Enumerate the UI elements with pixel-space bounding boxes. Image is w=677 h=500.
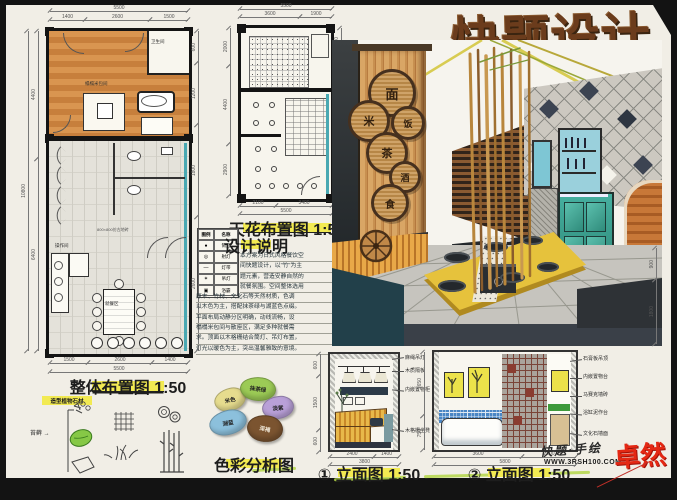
perspective-rendering: 面 米 饭 茶 酒 食 bbox=[332, 40, 662, 346]
dim-value: 1900 bbox=[310, 12, 321, 18]
elevation-annotation: 浴缸泥作台 bbox=[583, 409, 608, 416]
dim-value: 5500 bbox=[113, 6, 124, 12]
downlight-icon bbox=[283, 183, 289, 189]
chair-icon bbox=[92, 293, 102, 303]
swatch-label: 抹茶绿 bbox=[249, 384, 266, 394]
shelf-box bbox=[355, 397, 365, 405]
palette-caption: 色彩分析图 bbox=[226, 459, 282, 468]
dim-seg: 1400 bbox=[152, 363, 188, 364]
hatch-band bbox=[330, 354, 398, 359]
dim-value: 600 bbox=[191, 43, 197, 51]
lamp-cord bbox=[347, 366, 348, 372]
dim-value: 2900 bbox=[223, 164, 229, 175]
stool-icon bbox=[139, 337, 151, 349]
dim-value: 2600 bbox=[112, 15, 123, 21]
downlight-icon bbox=[253, 102, 259, 108]
burner-icon bbox=[54, 293, 63, 302]
dim-value: 600 bbox=[313, 437, 319, 445]
design-notes-heading: 设计说明 bbox=[241, 240, 271, 249]
dim-seg: 3600 bbox=[434, 457, 522, 458]
plant-glyph bbox=[445, 373, 460, 394]
red-cell bbox=[508, 364, 516, 373]
column-icon bbox=[237, 24, 246, 33]
design-notes: 本方案为日式风格餐饮空 间快题设计，以"竹"为主 题元素，营造安静自然的 就餐氛… bbox=[196, 252, 336, 355]
hatch-band bbox=[571, 352, 576, 450]
note-line: 原木、竹材、文化石等天然材质，色调 bbox=[196, 293, 336, 303]
tile-note: 800×800仿古地砖 bbox=[97, 227, 129, 233]
dining-table bbox=[103, 289, 135, 335]
dim-seg: 1500 bbox=[320, 376, 321, 430]
dim-seg: 1500 bbox=[50, 363, 88, 364]
downlight-icon bbox=[269, 120, 275, 126]
art-panel bbox=[444, 372, 464, 398]
chair-icon bbox=[136, 307, 146, 317]
legend-symbol: ● bbox=[198, 240, 214, 251]
design-board: 快题设计 bbox=[0, 0, 677, 500]
dim-top-total: 5500 bbox=[240, 9, 332, 10]
downlight-icon bbox=[269, 102, 275, 108]
dim-value: 1400 bbox=[164, 358, 175, 364]
swatch-label: 湖蓝 bbox=[222, 418, 234, 428]
dim-seg: 1400 bbox=[50, 20, 85, 21]
plant-glyph bbox=[469, 368, 486, 394]
burner-icon bbox=[54, 261, 63, 270]
elevation-1 bbox=[328, 352, 400, 452]
chair-icon bbox=[136, 321, 146, 331]
dim-value: 900 bbox=[649, 260, 655, 268]
green-sign bbox=[548, 404, 570, 411]
red-grid-wall bbox=[502, 354, 547, 448]
table-stove bbox=[97, 103, 113, 119]
red-cell bbox=[526, 388, 534, 397]
ceiling-plan bbox=[238, 25, 334, 202]
lattice-ceiling bbox=[249, 36, 309, 88]
dim-value: 1500 bbox=[63, 358, 74, 364]
stool-icon bbox=[107, 337, 119, 349]
sink-icon bbox=[161, 147, 173, 155]
niche-wall bbox=[547, 354, 571, 448]
dim-value: 3600 bbox=[264, 12, 275, 18]
teal-wall-line bbox=[326, 94, 329, 194]
ceiling-box bbox=[311, 34, 329, 58]
dim-seg: 2900 bbox=[230, 144, 231, 196]
room-label: 榻榻米包间 bbox=[85, 81, 108, 87]
watermark-text: 快题·手绘 bbox=[539, 439, 602, 460]
bench-base bbox=[335, 442, 391, 448]
swatch-label: 淡紫 bbox=[272, 403, 284, 412]
stool-icon bbox=[155, 337, 167, 349]
kitchen-appliance bbox=[69, 253, 89, 277]
dim-seg: 3400 bbox=[276, 206, 332, 207]
dim-seg: 2000 bbox=[230, 28, 231, 66]
dim-seg: 2400 bbox=[330, 457, 374, 458]
bathtub-front bbox=[441, 418, 503, 446]
dim-seg: 2600 bbox=[85, 20, 150, 21]
note-line: 榻榻米包间与散座区，满足多种就餐需 bbox=[196, 324, 336, 334]
elevation-annotation: 石膏板吊顶 bbox=[583, 355, 608, 362]
dim-value: 1200 bbox=[191, 88, 197, 99]
dim-seg: 750 bbox=[424, 416, 425, 450]
burner-icon bbox=[54, 277, 63, 286]
room-label: 操作间 bbox=[55, 243, 69, 249]
dim-left-total: 10800 bbox=[28, 31, 29, 351]
elevation-annotation: 马赛克墙砖 bbox=[583, 391, 608, 398]
dim-seg: 1400 bbox=[374, 457, 399, 458]
dim-value: 2600 bbox=[114, 358, 125, 364]
dim-top-total: 5500 bbox=[50, 11, 188, 12]
dim-seg: 600 bbox=[320, 430, 321, 452]
chair-icon bbox=[92, 307, 102, 317]
toilet-icon bbox=[127, 151, 141, 161]
plant-sketches bbox=[28, 400, 198, 480]
note-line: 灯光以暖色为主，突出温馨雅致的意境。 bbox=[196, 345, 336, 355]
art-panel bbox=[468, 367, 490, 398]
pendant-lamp-icon bbox=[358, 372, 372, 383]
pendant-lamp-icon bbox=[374, 372, 388, 383]
chair-icon bbox=[136, 293, 146, 303]
lamp-rod bbox=[338, 366, 390, 367]
dim-value: 1500 bbox=[313, 397, 319, 408]
dim-bottom-total: 5500 bbox=[50, 372, 188, 373]
dim-seg: 1800 bbox=[198, 125, 199, 217]
watermark-url: WWW.3RSH100.COM bbox=[544, 459, 622, 466]
dim-seg: 4400 bbox=[38, 31, 39, 159]
dim-seg: 600 bbox=[198, 31, 199, 63]
note-line: 间快题设计，以"竹"为主 bbox=[240, 262, 336, 272]
chair-icon bbox=[92, 321, 102, 331]
red-cell bbox=[514, 416, 522, 425]
lamp-cord bbox=[379, 366, 380, 372]
scene: 快题设计 bbox=[0, 0, 677, 500]
floor-plan: 榻榻米包间 卫生间 操作间 就餐区 800×800仿古地砖 bbox=[46, 28, 192, 357]
dim-seg: 1500 bbox=[150, 20, 188, 21]
toilet-icon bbox=[127, 185, 141, 195]
dim-value: 4400 bbox=[223, 99, 229, 110]
dim-value: 1800 bbox=[191, 165, 197, 176]
downlight-icon bbox=[253, 120, 259, 126]
dim-value: 2400 bbox=[346, 452, 357, 458]
note-line: 以木色为主，搭配抹茶绿与湖蓝色点缀。 bbox=[196, 303, 336, 313]
grid-ceiling bbox=[285, 98, 329, 156]
dim-value: 6400 bbox=[31, 249, 37, 260]
note-line: 求。顶面以木格栅结合筒灯、吊灯布置， bbox=[196, 334, 336, 344]
dim-value: 5500 bbox=[280, 4, 291, 10]
elevation-1-caption: ① 立面图 1:50 bbox=[338, 468, 400, 477]
lamp-cord bbox=[363, 366, 364, 372]
dim-value: 2100 bbox=[252, 201, 263, 207]
door-arc-icon bbox=[301, 176, 320, 195]
bathroom bbox=[147, 31, 189, 75]
shower-tray bbox=[141, 117, 173, 135]
dim-seg: 6400 bbox=[38, 159, 39, 351]
photo-corner-wedge bbox=[653, 5, 671, 35]
downlight-icon bbox=[271, 146, 277, 152]
dim-value: 1400 bbox=[381, 452, 392, 458]
dim-seg: 2600 bbox=[88, 363, 152, 364]
divider-wall bbox=[241, 134, 281, 137]
ceiling-plan-caption: 天花布置图 1:50 bbox=[243, 223, 331, 233]
note-line: 题元素，营造安静自然的 bbox=[240, 273, 336, 283]
dim-seg: 4400 bbox=[230, 66, 231, 144]
dim-seg: 900 bbox=[656, 248, 657, 280]
dim-value: 10800 bbox=[21, 184, 27, 198]
dim-value: 3600 bbox=[472, 452, 483, 458]
room-label: 就餐区 bbox=[105, 301, 119, 307]
stall-wall bbox=[113, 177, 185, 179]
dim-seg: 1650 bbox=[424, 352, 425, 416]
leader-line bbox=[392, 371, 404, 372]
elevation-annotation: 木质隔板 bbox=[405, 367, 425, 374]
bathtub-basin bbox=[141, 95, 167, 107]
chair-icon bbox=[114, 279, 124, 289]
stool-icon bbox=[123, 337, 135, 349]
elevation-annotation: 内嵌置物台 bbox=[583, 373, 608, 380]
dim-value: 4400 bbox=[31, 89, 37, 100]
downlight-icon bbox=[255, 146, 261, 152]
dim-value: 1400 bbox=[62, 15, 73, 21]
downlight-icon bbox=[269, 183, 275, 189]
hatch-band bbox=[434, 352, 439, 450]
dim-seg: 1800 bbox=[656, 280, 657, 344]
hatch-band bbox=[393, 354, 398, 450]
cushion bbox=[370, 418, 383, 426]
column-icon bbox=[326, 24, 335, 33]
swatch-label: 深褐 bbox=[259, 423, 271, 433]
leader-line bbox=[570, 396, 582, 397]
dim-value: 1650 bbox=[417, 378, 423, 389]
dim-value: 5500 bbox=[113, 367, 124, 373]
note-line: 本方案为日式风格餐饮空 bbox=[240, 252, 336, 262]
swatch-label: 米色 bbox=[224, 394, 236, 404]
note-line: 平面布局动静分区明确，动线流畅，设 bbox=[196, 314, 336, 324]
divider-wall bbox=[241, 88, 331, 92]
stool-icon bbox=[171, 337, 183, 349]
dim-value: 2000 bbox=[223, 41, 229, 52]
downlight-icon bbox=[255, 166, 261, 172]
dim-seg: 3600 bbox=[240, 17, 300, 18]
elevation-2 bbox=[432, 350, 578, 452]
dim-value: 1500 bbox=[163, 15, 174, 21]
column-icon bbox=[237, 194, 246, 203]
elevation-2-caption: ② 立面图 1:50 bbox=[488, 468, 550, 477]
downlight-icon bbox=[271, 166, 277, 172]
teal-panel bbox=[384, 414, 393, 442]
elevation-annotation: 麻绳吊灯 bbox=[405, 354, 425, 361]
dim-seg: 2100 bbox=[240, 206, 276, 207]
stall-wall bbox=[113, 143, 115, 215]
color-swatch: 湖蓝 bbox=[207, 407, 249, 438]
elevation-annotation: 文化石墙面 bbox=[583, 430, 608, 437]
dim-value: 3400 bbox=[298, 201, 309, 207]
dim-seg: 1200 bbox=[198, 63, 199, 125]
studio-logo: 卓然 bbox=[613, 434, 667, 475]
dim-value: 750 bbox=[417, 429, 423, 437]
bamboo-poles bbox=[332, 40, 662, 346]
legend-header: 图例 bbox=[198, 229, 214, 240]
leader-line bbox=[570, 378, 582, 379]
stool-icon bbox=[91, 337, 103, 349]
room-label: 卫生间 bbox=[151, 39, 165, 45]
dim-seg: 1900 bbox=[300, 17, 332, 18]
niche-art-box bbox=[551, 370, 569, 392]
dim-value: 1800 bbox=[649, 306, 655, 317]
dim-value: 5500 bbox=[280, 209, 291, 215]
downlight-icon bbox=[255, 183, 261, 189]
dim-value: 600 bbox=[313, 361, 319, 369]
pendant-lamp-icon bbox=[342, 372, 356, 383]
note-line: 就餐氛围。空间整体选用 bbox=[240, 283, 336, 293]
floor-plan-caption: 整体布置图 1:50 bbox=[92, 381, 164, 392]
